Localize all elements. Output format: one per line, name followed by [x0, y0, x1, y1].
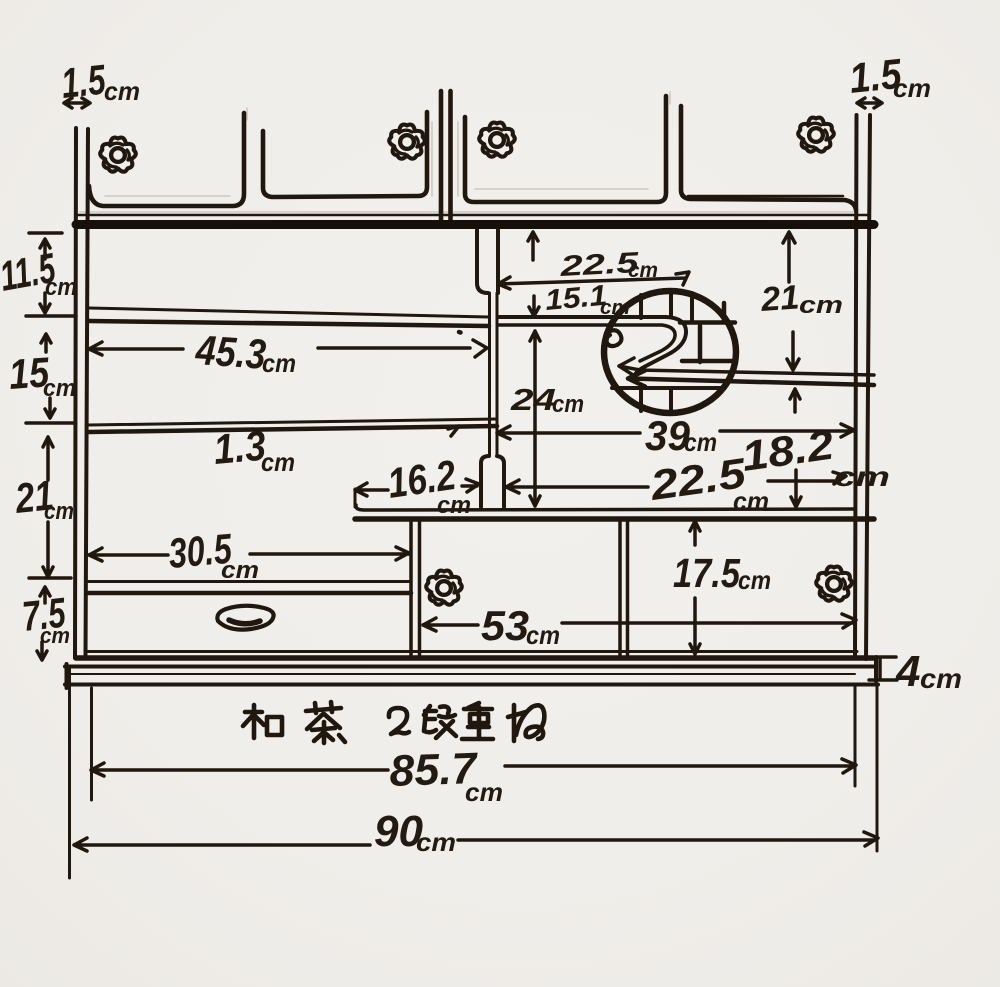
svg-text:cm: cm — [465, 777, 503, 807]
svg-text:cm: cm — [600, 297, 630, 319]
svg-text:cm: cm — [733, 486, 769, 516]
svg-text:cm: cm — [799, 292, 843, 319]
svg-text:cm: cm — [437, 492, 471, 519]
svg-text:cm: cm — [104, 76, 140, 106]
svg-text:cm: cm — [40, 623, 70, 648]
svg-text:24: 24 — [510, 382, 556, 417]
svg-text:15.1: 15.1 — [544, 280, 609, 317]
svg-text:1.5: 1.5 — [59, 56, 108, 107]
svg-text:45.3: 45.3 — [194, 326, 268, 378]
svg-text:53: 53 — [481, 602, 529, 649]
svg-text:4: 4 — [895, 647, 920, 696]
svg-text:cm: cm — [552, 391, 584, 418]
svg-text:cm: cm — [628, 259, 658, 282]
svg-text:1.3: 1.3 — [212, 422, 268, 473]
svg-text:cm: cm — [261, 447, 295, 477]
svg-text:cm: cm — [893, 73, 931, 103]
svg-text:cm: cm — [45, 274, 77, 301]
svg-text:21: 21 — [759, 278, 801, 319]
svg-text:cm: cm — [738, 565, 771, 595]
svg-text:cm: cm — [416, 827, 456, 857]
svg-text:cm: cm — [221, 557, 259, 584]
svg-text:cm: cm — [262, 348, 296, 378]
svg-text:cm: cm — [43, 375, 76, 402]
svg-text:cm: cm — [44, 498, 74, 525]
svg-text:cm: cm — [526, 620, 560, 650]
svg-text:cm: cm — [834, 461, 890, 492]
svg-text:cm: cm — [920, 663, 962, 694]
svg-text:17.5: 17.5 — [673, 550, 741, 596]
